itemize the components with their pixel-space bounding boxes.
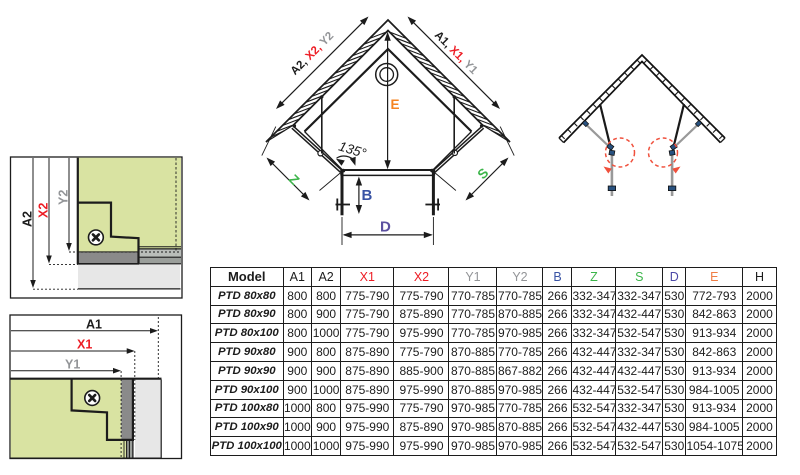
svg-text:E: E	[391, 97, 400, 112]
svg-text:X1: X1	[77, 338, 92, 352]
svg-text:S: S	[475, 165, 492, 182]
svg-text:A2: A2	[21, 211, 35, 227]
svg-text:B: B	[362, 187, 373, 204]
svg-text:A2, X2, Y2: A2, X2, Y2	[289, 30, 337, 78]
svg-text:A1: A1	[86, 318, 102, 332]
svg-text:Y2: Y2	[57, 190, 71, 205]
svg-text:Z: Z	[286, 172, 302, 188]
svg-text:X2: X2	[37, 203, 51, 218]
svg-text:Y1: Y1	[65, 357, 80, 371]
svg-text:D: D	[380, 219, 391, 236]
